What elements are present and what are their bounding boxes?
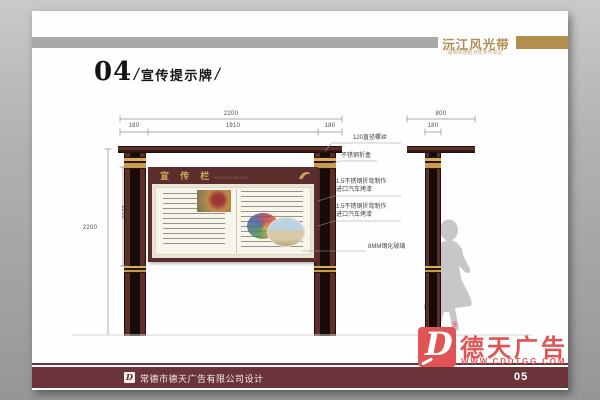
dim-front-total-height: 2200 bbox=[76, 225, 104, 231]
footer-bar: D 常德市德天广告有限公司设计 05 bbox=[32, 367, 568, 388]
header-gold-bar bbox=[516, 36, 568, 49]
page-title-number: 04 bbox=[94, 57, 132, 87]
oval-landscape-photo bbox=[267, 217, 305, 247]
dim-front-total-width: 2200 bbox=[216, 111, 246, 117]
side-top-bar bbox=[407, 146, 475, 153]
notice-board: 宣 传 栏 NOTIFICATION bbox=[148, 167, 318, 262]
gold-ornament-icon bbox=[298, 171, 311, 180]
front-left-post-gold-bands-mid bbox=[124, 266, 146, 273]
side-post-gold-bands-top bbox=[425, 157, 441, 169]
front-left-post-gold-bands-top bbox=[124, 157, 146, 169]
notice-board-header: 宣 传 栏 NOTIFICATION bbox=[148, 167, 318, 184]
poster-photo bbox=[197, 190, 231, 212]
header-gray-bar bbox=[32, 37, 438, 48]
dim-front-seg-left: 180 bbox=[122, 123, 146, 129]
board-title-en: NOTIFICATION bbox=[214, 175, 248, 180]
page-title-name: 宣传提示牌 bbox=[141, 65, 214, 84]
dim-front-seg-center: 1910 bbox=[216, 123, 250, 129]
callout-steel-2: 1.5不锈钢折弯制作 进口汽车烤漆 bbox=[336, 204, 386, 219]
dim-side-post: 180 bbox=[418, 123, 448, 129]
board-content-area bbox=[152, 184, 314, 258]
callout-steel-box: 不锈钢折盒 bbox=[341, 153, 371, 161]
footer-logo-icon: D bbox=[124, 372, 135, 383]
callout-steel-1: 1.5不锈钢折弯制作 进口汽车烤漆 bbox=[336, 179, 386, 194]
watermark-website: WWW.CDDTGG.COM bbox=[461, 357, 566, 366]
album-page: 沅江风光带 湖南常德经济技术开发区 04 / 宣传提示牌 / bbox=[32, 11, 568, 390]
callout-steel-1-line2: 进口汽车烤漆 bbox=[336, 187, 386, 195]
brand-subtitle: 湖南常德经济技术开发区 bbox=[436, 49, 514, 56]
dim-side-width: 800 bbox=[426, 111, 456, 117]
callout-steel-2-line2: 进口汽车烤漆 bbox=[336, 212, 386, 220]
watermark-logo: D bbox=[418, 327, 456, 367]
side-post bbox=[425, 153, 441, 336]
design-album-canvas: 沅江风光带 湖南常德经济技术开发区 04 / 宣传提示牌 / bbox=[0, 0, 600, 400]
board-paper-panel bbox=[155, 187, 311, 255]
panel-divider bbox=[236, 189, 237, 253]
page-number: 05 bbox=[514, 371, 528, 383]
title-separator: / bbox=[213, 65, 222, 85]
side-post-gold-bands-mid bbox=[425, 266, 441, 273]
dim-front-seg-right: 180 bbox=[318, 123, 342, 129]
footer-company: 常德市德天广告有限公司设计 bbox=[140, 372, 264, 385]
callout-glass: 8MM钢化玻璃 bbox=[368, 244, 405, 252]
callout-steel-1-line1: 1.5不锈钢折弯制作 bbox=[336, 179, 386, 187]
registered-mark: ® bbox=[452, 320, 458, 329]
page-title: 04 / 宣传提示牌 / bbox=[94, 57, 222, 87]
title-separator: / bbox=[132, 65, 141, 85]
front-top-bar bbox=[118, 146, 342, 153]
front-right-post-gold-bands-mid bbox=[314, 266, 336, 273]
board-title-cn: 宣 传 栏 bbox=[160, 169, 213, 182]
front-left-post bbox=[124, 153, 146, 336]
callout-steel-2-line1: 1.5不锈钢折弯制作 bbox=[336, 204, 386, 212]
callout-screw: 120直径螺丝 bbox=[353, 135, 387, 143]
person-silhouette bbox=[392, 217, 504, 337]
